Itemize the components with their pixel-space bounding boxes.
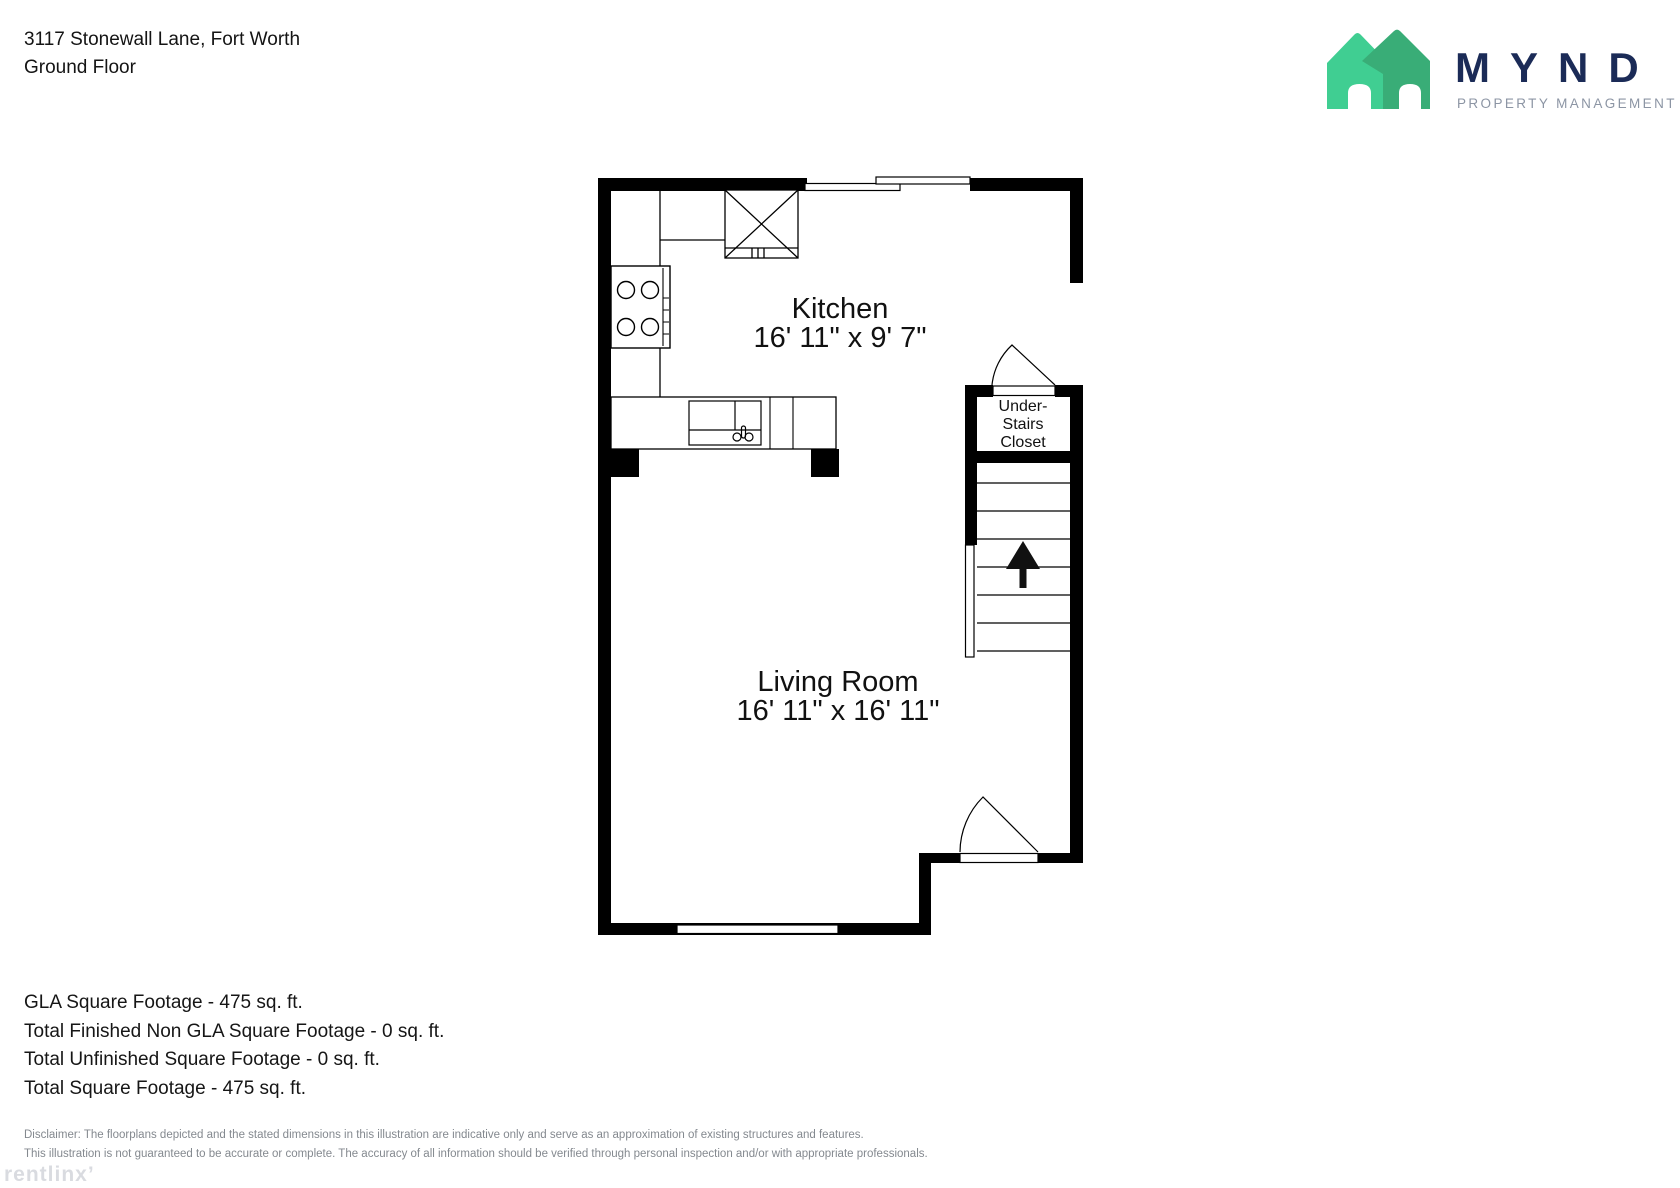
wall-stub-left bbox=[611, 449, 639, 477]
closet-door-swing-arc bbox=[992, 345, 1055, 385]
disclaimer-line: This illustration is not guaranteed to b… bbox=[24, 1145, 928, 1164]
disclaimer-line: Disclaimer: The floorplans depicted and … bbox=[24, 1126, 928, 1145]
stairs bbox=[966, 483, 1071, 657]
living-room-label: Living Room bbox=[757, 666, 918, 698]
kitchen-dimensions: 16' 11" x 9' 7" bbox=[753, 322, 926, 354]
stat-line: Total Square Footage - 475 sq. ft. bbox=[24, 1075, 444, 1104]
stat-line: Total Unfinished Square Footage - 0 sq. … bbox=[24, 1046, 444, 1075]
stairs-left-wall bbox=[965, 463, 977, 545]
closet-label-line2: Stairs bbox=[1003, 416, 1044, 433]
sliding-door bbox=[805, 177, 970, 191]
closet-label-line3: Closet bbox=[1000, 434, 1046, 451]
stat-line: Total Finished Non GLA Square Footage - … bbox=[24, 1018, 444, 1047]
stat-line: GLA Square Footage - 475 sq. ft. bbox=[24, 989, 444, 1018]
closet-label-line1: Under- bbox=[999, 398, 1048, 415]
entry-door bbox=[960, 797, 1038, 863]
living-room-dimensions: 16' 11" x 16' 11" bbox=[736, 695, 939, 727]
step-wall bbox=[919, 853, 931, 935]
stairs-rail bbox=[966, 545, 975, 657]
kitchen-island bbox=[611, 397, 836, 449]
walls bbox=[598, 178, 1083, 935]
sliding-door-panel-upper bbox=[876, 177, 970, 184]
top-wall-left bbox=[598, 178, 807, 191]
stove bbox=[611, 266, 670, 348]
entry-door-threshold bbox=[960, 854, 1038, 863]
stove-body bbox=[611, 266, 670, 348]
right-wall-upper bbox=[1070, 178, 1083, 283]
top-wall-right bbox=[970, 178, 1083, 191]
stairs-up-arrow-icon bbox=[1006, 541, 1040, 588]
rentlinx-watermark: rentlinx’ bbox=[4, 1163, 95, 1187]
disclaimer-block: Disclaimer: The floorplans depicted and … bbox=[24, 1126, 928, 1164]
closet-door-threshold bbox=[993, 386, 1055, 396]
square-footage-stats: GLA Square Footage - 475 sq. ft. Total F… bbox=[24, 989, 444, 1103]
living-room-window bbox=[677, 925, 838, 934]
entry-door-swing-arc bbox=[960, 797, 1038, 852]
island-counter bbox=[611, 397, 836, 449]
wall-stub-right bbox=[811, 449, 839, 477]
closet-bottom-wall bbox=[965, 451, 1083, 463]
refrigerator bbox=[725, 190, 798, 258]
closet-door bbox=[992, 345, 1055, 396]
left-wall bbox=[598, 178, 611, 935]
entry-wall-left bbox=[919, 853, 960, 863]
closet-top-wall-right bbox=[1055, 385, 1083, 397]
kitchen-label: Kitchen bbox=[792, 293, 889, 325]
